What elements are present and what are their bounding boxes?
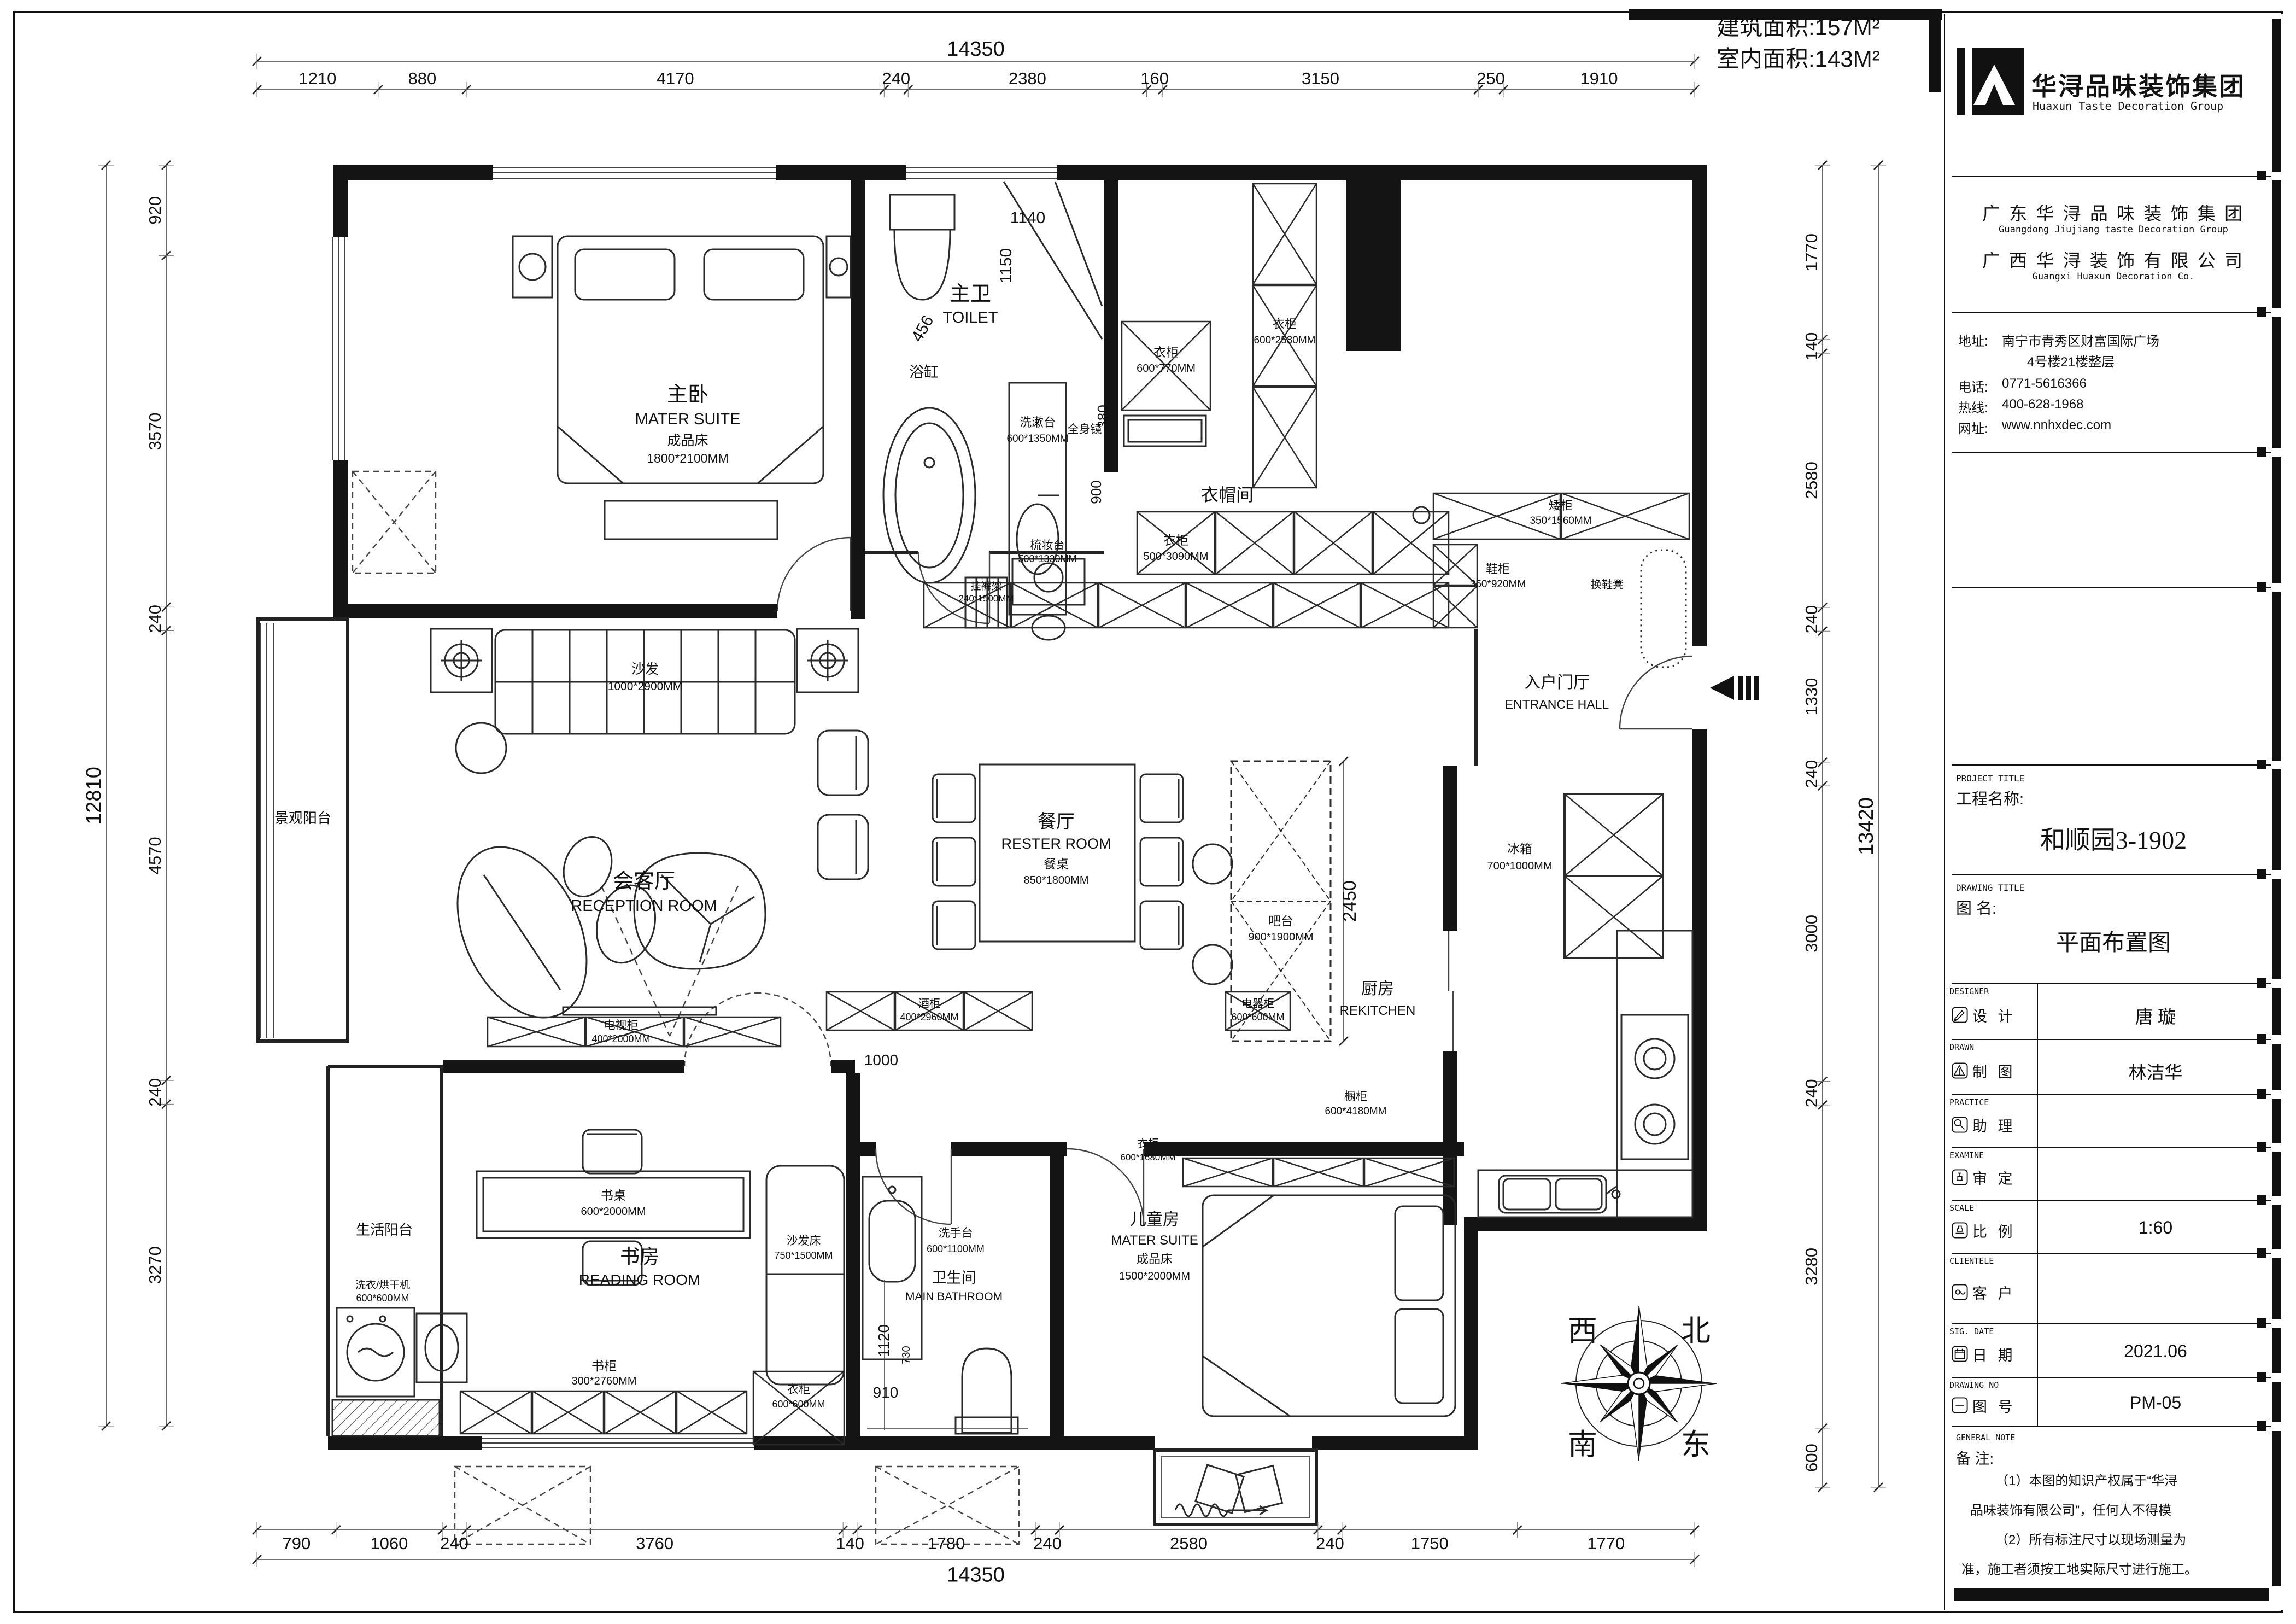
row-label-1: 制 图 <box>1972 1060 2016 1082</box>
titleblock-divider <box>1952 1323 2271 1324</box>
plan-label: MATER SUITE <box>635 411 741 428</box>
plan-label: 酒柜 <box>918 997 940 1010</box>
contact-label: 地址: <box>1958 330 1988 349</box>
entrance-arrow-icon <box>1710 676 1759 700</box>
doors <box>601 538 1692 1225</box>
floor-plan: 1435012108804170240238016031502501910128… <box>0 0 1944 1624</box>
plan-label: 3760 <box>636 1534 673 1553</box>
titleblock-divider <box>1952 1200 2271 1201</box>
titleblock-divider-square <box>2257 307 2266 317</box>
note-line-2: 品味装饰有限公司”，任何人不得模 <box>1970 1499 2171 1518</box>
plan-label: 卫生间 <box>932 1270 976 1286</box>
plan-label: 14350 <box>947 1563 1005 1586</box>
titleblock-divider <box>1952 1039 2271 1040</box>
plan-label: 600 <box>1802 1444 1821 1472</box>
titleblock-divider-square <box>2257 1248 2266 1258</box>
titleblock-divider-square <box>2257 869 2266 879</box>
plan-label: 380 <box>1094 405 1111 428</box>
plan-label: 2450 <box>1339 880 1360 922</box>
plan-label: 生活阳台 <box>356 1222 413 1238</box>
drawing-title-label: 图 名: <box>1956 896 1996 919</box>
plan-label: 鞋柜 <box>1486 562 1510 576</box>
titleblock-divider-square <box>2257 1089 2266 1099</box>
brand-name-en: Huaxun Taste Decoration Group <box>2033 100 2223 113</box>
titleblock-divider-square <box>2257 1034 2266 1044</box>
plan-label: 1000 <box>864 1051 898 1068</box>
glasses-icon <box>1952 1284 1968 1300</box>
titleblock-divider <box>1952 764 2271 766</box>
plan-label: 920 <box>145 196 165 225</box>
titleblock-bar-gap <box>2272 172 2281 180</box>
plan-label: 1750 <box>1411 1534 1449 1553</box>
plan-label: 洗手台 <box>939 1227 973 1240</box>
plan-label: 3150 <box>1302 69 1339 88</box>
plan-label: 350*920MM <box>1470 579 1526 590</box>
row-label-5: 客 户 <box>1972 1282 2016 1303</box>
plan-label: 衣柜 <box>787 1383 810 1396</box>
row-label-6: 日 期 <box>1972 1343 2016 1365</box>
plan-label: 梳妆台 <box>1030 539 1065 552</box>
plan-label: 1140 <box>1010 209 1046 227</box>
project-title-value: 和顺园3-1902 <box>1945 820 2282 856</box>
row-value-1: 林洁华 <box>2038 1058 2273 1084</box>
company-name-cn: 广 东 华 浔 品 味 装 饰 集 团 <box>1945 199 2282 225</box>
row-en-5: CLIENTELE <box>1949 1256 1994 1266</box>
plan-label: 换鞋凳 <box>1591 579 1624 591</box>
titleblock-divider <box>1952 874 2271 875</box>
notes-label: 备 注: <box>1956 1447 1994 1468</box>
plan-label: 沙发 <box>631 662 659 677</box>
plan-label: 600*600MM <box>356 1293 409 1304</box>
plan-label: 240 <box>1802 1079 1821 1107</box>
calendar-icon <box>1952 1346 1968 1362</box>
row-label-3: 审 定 <box>1972 1167 2016 1188</box>
plan-label: 儿童房 <box>1130 1211 1179 1229</box>
plan-label: RESTER ROOM <box>1001 836 1111 852</box>
plan-label: 240 <box>1033 1534 1062 1553</box>
plan-label: 书房 <box>620 1245 659 1267</box>
plan-label: 140 <box>1802 332 1821 361</box>
plan-label: 750*1500MM <box>774 1250 833 1261</box>
plan-label: 2580 <box>1802 462 1821 499</box>
plan-label: 厨房 <box>1361 980 1394 998</box>
partitions <box>258 552 1476 1524</box>
magnifier-icon <box>1952 1117 1968 1133</box>
drawing-title-en: DRAWING TITLE <box>1956 883 2024 893</box>
drawing-sheet: 1435012108804170240238016031502501910128… <box>0 0 2296 1624</box>
titleblock-bar-gap <box>2272 1035 2281 1044</box>
plan-label: 4570 <box>145 837 165 874</box>
row-en-0: DESIGNER <box>1949 986 1989 996</box>
notes-en: GENERAL NOTE <box>1956 1433 2015 1442</box>
titleblock-divider <box>1952 983 2271 984</box>
plan-label: TOILET <box>943 309 998 326</box>
plan-label: 456 <box>908 312 938 345</box>
plan-label: 400*2000MM <box>591 1033 650 1044</box>
company-name-en: Guangxi Huaxun Decoration Co. <box>1945 271 2282 282</box>
scale-icon <box>1952 1222 1968 1239</box>
plan-label: 600*1680MM <box>1120 1152 1175 1162</box>
plan-label: 建筑面积:157M² <box>1717 14 1880 40</box>
plan-label: 600*600MM <box>772 1399 825 1410</box>
row-value-7: PM-05 <box>2038 1393 2273 1413</box>
plan-label: 600*600MM <box>1231 1012 1284 1023</box>
plan-label: 700*1000MM <box>1487 860 1553 872</box>
titleblock-bar-gap <box>2272 979 2281 988</box>
plan-label: 600*1100MM <box>927 1243 985 1254</box>
plan-label: 书柜 <box>591 1359 617 1373</box>
plan-label: 250 <box>1477 69 1505 88</box>
titleblock-divider <box>1952 312 2271 313</box>
plan-label: 240 <box>145 1078 165 1107</box>
plan-label: 910 <box>873 1384 899 1401</box>
plan-label: 1770 <box>1802 233 1821 271</box>
titleblock-divider-square <box>2257 1421 2266 1431</box>
plan-label: 景观阳台 <box>274 810 331 826</box>
plan-label: 240 <box>1802 605 1821 634</box>
row-en-2: PRACTICE <box>1949 1097 1989 1107</box>
titleblock-divider <box>1952 587 2271 588</box>
row-label-0: 设 计 <box>1972 1004 2016 1026</box>
project-title-label: 工程名称: <box>1956 786 2024 809</box>
plan-label: 240 <box>882 69 910 88</box>
titleblock-bar-gap <box>2272 1143 2281 1152</box>
contact-label: 电话: <box>1958 376 1988 395</box>
titleblock-bottom-bar <box>1954 1588 2269 1601</box>
plan-label: 洗衣/烘干机 <box>355 1279 410 1291</box>
dim-chain-bottom-segments: 790106024037601401780240258024017501770 <box>253 1522 1699 1553</box>
titleblock-divider <box>1952 1147 2271 1148</box>
row-en-4: SCALE <box>1949 1203 1974 1213</box>
plan-label: 室内面积:143M² <box>1717 46 1880 72</box>
company-logo-icon <box>1957 48 2024 115</box>
plan-label: 电器柜 <box>1241 997 1274 1010</box>
titleblock-bar-gap <box>2272 1090 2281 1099</box>
plan-label: 成品床 <box>667 433 708 448</box>
plan-label: 160 <box>1140 69 1169 88</box>
plan-label: 1150 <box>997 248 1015 284</box>
plan-label: 240 <box>145 605 165 633</box>
plan-label: MAIN BATHROOM <box>905 1290 1003 1303</box>
titleblock-divider-square <box>2257 1195 2266 1205</box>
row-value-6: 2021.06 <box>2038 1341 2273 1362</box>
titleblock-divider <box>1952 452 2271 453</box>
titleblock-divider-square <box>2257 1318 2266 1328</box>
row-label-7: 图 号 <box>1972 1395 2016 1416</box>
plan-label: READING ROOM <box>579 1271 700 1288</box>
plan-label: 1800*2100MM <box>647 451 729 465</box>
plan-label: 400*2960MM <box>900 1012 958 1023</box>
titleblock-divider-square <box>2257 1372 2266 1382</box>
dim-chain-right-segments: 17701402580240133024030002403280600 <box>1802 161 1830 1492</box>
plan-label: 500*3090MM <box>1144 551 1209 563</box>
plan-label: 3280 <box>1802 1248 1821 1286</box>
stamp-icon <box>1952 1169 1968 1185</box>
plan-label: 1500*2000MM <box>1119 1270 1190 1282</box>
plan-label: 主卧 <box>667 383 708 406</box>
plan-label: 1770 <box>1587 1534 1625 1553</box>
plan-label: 餐桌 <box>1044 857 1069 871</box>
plan-label: 600*770MM <box>1137 363 1196 375</box>
plan-label: 850*1800MM <box>1024 874 1089 886</box>
plan-label: 成品床 <box>1137 1252 1173 1266</box>
plan-label: 3000 <box>1802 915 1821 953</box>
titleblock-divider-square <box>2257 760 2266 769</box>
plan-label: 300*2760MM <box>572 1375 637 1387</box>
title-block: 华浔品味装饰集团 Huaxun Taste Decoration Group 广… <box>1944 14 2283 1610</box>
row-en-6: SIG. DATE <box>1949 1327 1994 1336</box>
contact-value: 南宁市青秀区财富国际广场 <box>2002 330 2159 349</box>
plan-label: 880 <box>408 69 437 88</box>
plan-label: 衣帽间 <box>1201 485 1254 505</box>
row-label-2: 助 理 <box>1972 1114 2016 1136</box>
plan-label: 橱柜 <box>1344 1090 1367 1103</box>
row-label-4: 比 例 <box>1972 1220 2016 1241</box>
titleblock-bar-gap <box>2272 1422 2281 1431</box>
plan-label: 南 <box>1568 1428 1597 1461</box>
dim-chain-right-overall: 13420 <box>1855 161 1886 1492</box>
plan-label: 吧台 <box>1268 914 1293 928</box>
titleblock-bar-gap <box>2272 1196 2281 1205</box>
contact-value: 400-628-1968 <box>2002 397 2083 412</box>
plan-label: 冰箱 <box>1507 842 1532 856</box>
dim-chain-top-segments: 12108804170240238016031502501910 <box>253 69 1699 97</box>
plan-label: 13420 <box>1855 797 1878 855</box>
plan-label: 矮柜 <box>1549 499 1573 512</box>
drawing-title-value: 平面布置图 <box>1945 924 2282 957</box>
plan-label: 衣柜 <box>1273 317 1297 331</box>
titleblock-bar-gap <box>2272 1249 2281 1258</box>
company-name-cn: 广 西 华 浔 装 饰 有 限 公 司 <box>1945 246 2282 272</box>
dim-chain-bottom-overall: 14350 <box>253 1552 1699 1586</box>
plan-label: 140 <box>836 1534 864 1553</box>
plan-labels: 建筑面积:157M²室内面积:143M²主卧MATER SUITE成品床1800… <box>274 14 1880 1461</box>
plan-label: MATER SUITE <box>1111 1233 1198 1248</box>
plan-label: 西 <box>1568 1315 1597 1347</box>
plan-label: 北 <box>1681 1315 1711 1347</box>
titleblock-bar-gap <box>2272 761 2281 769</box>
plan-label: 1330 <box>1802 678 1821 716</box>
row-en-1: DRAWN <box>1949 1042 1974 1052</box>
titleblock-bar-gap <box>2272 583 2281 592</box>
plan-label: 1000*2900MM <box>608 680 683 693</box>
plan-label: 600*2580MM <box>1254 335 1315 346</box>
dim-chain-top-overall: 14350 <box>253 38 1699 69</box>
titleblock-divider <box>1952 1377 2271 1378</box>
row-value-0: 唐 璇 <box>2038 1002 2273 1029</box>
plan-label: 3270 <box>145 1246 165 1284</box>
titleblock-divider <box>1952 1094 2271 1095</box>
dim-chain-left-overall: 12810 <box>83 161 114 1430</box>
titleblock-right-bar <box>2272 19 2281 1586</box>
plan-label: 1910 <box>1580 69 1618 88</box>
note-line-4: 准，施工者须按工地实际尺寸进行施工。 <box>1961 1558 2198 1578</box>
plan-label: 240*1500MM <box>958 593 1014 604</box>
plan-label: 衣柜 <box>1137 1137 1159 1150</box>
company-name-en: Guangdong Jiujiang taste Decoration Grou… <box>1945 224 2282 235</box>
plan-label: 600*1350MM <box>1006 433 1068 445</box>
titleblock-divider-square <box>2257 978 2266 988</box>
row-value-4: 1:60 <box>2038 1218 2273 1238</box>
contact-value: www.nnhxdec.com <box>2002 418 2111 433</box>
titleblock-divider-square <box>2257 447 2266 457</box>
number-icon <box>1952 1397 1968 1413</box>
titleblock-divider <box>1952 1253 2271 1254</box>
plan-label: 350*1560MM <box>1530 515 1591 527</box>
plan-label: 2380 <box>1009 69 1046 88</box>
plan-label: RECEPTION ROOM <box>571 897 717 915</box>
plan-label: 240 <box>440 1534 468 1553</box>
plan-label: 240 <box>1802 760 1821 788</box>
titleblock-divider <box>1952 176 2271 177</box>
pen-icon <box>1952 1007 1968 1023</box>
project-title-en: PROJECT TITLE <box>1956 773 2024 784</box>
plan-label: 12810 <box>83 767 106 825</box>
dim-chain-left-segments: 920357024045702403270 <box>145 161 174 1430</box>
plan-label: 2580 <box>1170 1534 1208 1553</box>
titleblock-divider-square <box>2257 582 2266 592</box>
plan-label: 衣柜 <box>1153 345 1179 359</box>
titleblock-bar-gap <box>2272 870 2281 879</box>
plan-label: 900 <box>1088 480 1104 504</box>
drafting-icon <box>1952 1062 1968 1079</box>
plan-label: 会客厅 <box>613 870 675 893</box>
contact-value: 4号楼21楼整层 <box>2027 351 2115 370</box>
plan-label: 书桌 <box>601 1188 626 1202</box>
plan-label: 900*1900MM <box>1249 931 1314 943</box>
row-en-7: DRAWING NO <box>1949 1380 1999 1390</box>
plan-label: 730 <box>900 1346 912 1364</box>
contact-label: 网址: <box>1958 418 1988 437</box>
row-en-3: EXAMINE <box>1949 1150 1984 1160</box>
titleblock-bar-gap <box>2272 1319 2281 1328</box>
titleblock-divider <box>1952 1426 2271 1427</box>
plan-label: 240 <box>1316 1534 1344 1553</box>
titleblock-divider-square <box>2257 1142 2266 1152</box>
plan-label: 餐厅 <box>1038 811 1075 832</box>
plan-label: 沙发床 <box>787 1235 821 1247</box>
plan-label: 浴缸 <box>909 364 939 381</box>
plan-label: 600*4180MM <box>1325 1106 1386 1117</box>
plan-label: 14350 <box>947 38 1005 61</box>
plan-label: 4170 <box>657 69 694 88</box>
plan-label: 东 <box>1681 1428 1711 1461</box>
plan-label: 衣柜 <box>1163 533 1188 547</box>
titleblock-bar-gap <box>2272 448 2281 457</box>
plan-label: 入户门厅 <box>1524 674 1590 692</box>
plan-label: 600*2000MM <box>581 1206 646 1218</box>
titleblock-divider-square <box>2257 171 2266 180</box>
plan-label: 挂裤架 <box>970 580 1001 592</box>
plan-label: REKITCHEN <box>1340 1003 1416 1018</box>
walls <box>328 165 1707 1450</box>
titleblock-bar-gap <box>2272 308 2281 317</box>
plan-label: 790 <box>283 1534 311 1553</box>
plan-label: 500*1330MM <box>1018 553 1076 564</box>
note-line-3: （2）所有标注尺寸以现场测量为 <box>1995 1529 2186 1548</box>
plan-label: 1060 <box>370 1534 408 1553</box>
plan-label: 电视柜 <box>604 1019 639 1032</box>
plan-label: 洗漱台 <box>1020 416 1056 429</box>
note-line-1: （1）本图的知识产权属于“华浔 <box>1995 1470 2177 1489</box>
contact-label: 热线: <box>1958 397 1988 416</box>
plan-label: 1210 <box>298 69 336 88</box>
dimension-chains: 1435012108804170240238016031502501910128… <box>83 38 1886 1586</box>
plan-label: ENTRANCE HALL <box>1505 697 1609 711</box>
contact-value: 0771-5616366 <box>2002 376 2087 392</box>
brand-name: 华浔品味装饰集团 <box>2031 67 2246 103</box>
plan-label: 1780 <box>927 1534 965 1553</box>
plan-label: 主卫 <box>950 283 991 306</box>
plan-label: 1120 <box>875 1324 892 1357</box>
plan-label: 3570 <box>145 412 165 450</box>
titleblock-bar-gap <box>2272 1373 2281 1382</box>
